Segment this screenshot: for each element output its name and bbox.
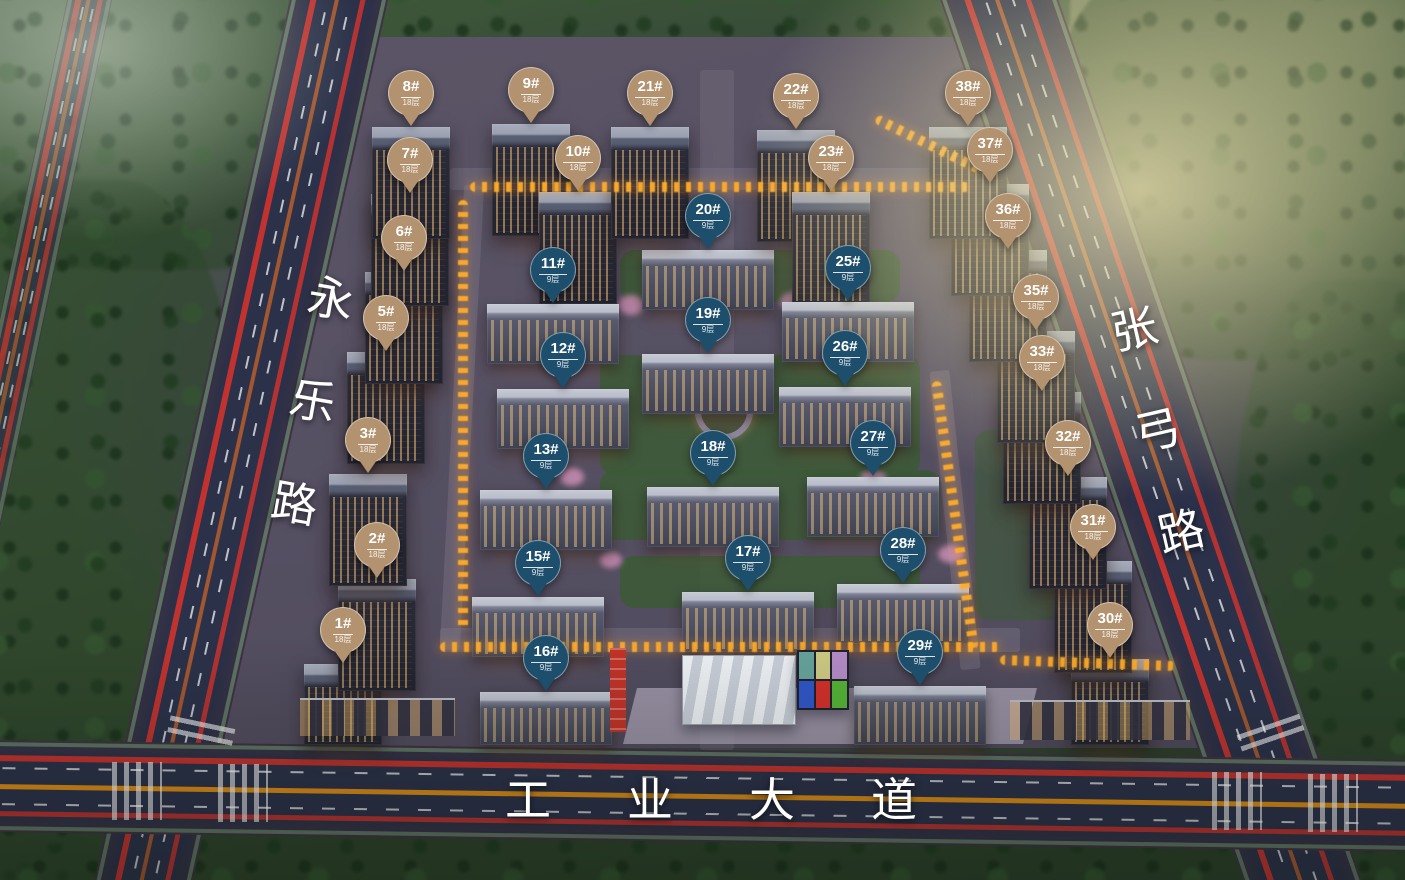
pin-head: 13# 9层: [523, 433, 569, 479]
pin-building-number: 19#: [693, 306, 722, 326]
pin-tail-icon: [864, 463, 882, 476]
pin-tail-icon: [522, 110, 540, 123]
pin-head: 18# 9层: [690, 430, 736, 476]
pin-floor-count: 18层: [1000, 222, 1017, 230]
pin-floor-count: 18层: [1060, 449, 1077, 457]
pin-tail-icon: [368, 565, 386, 578]
pin-tail-icon: [401, 180, 419, 193]
pin-tail-icon: [981, 170, 999, 183]
pin-head: 38# 18层: [945, 70, 991, 116]
building-pin[interactable]: 36# 18层: [985, 193, 1031, 249]
pin-building-number: 9#: [521, 76, 542, 96]
pin-tail-icon: [839, 288, 857, 301]
building-pin[interactable]: 26# 9层: [822, 330, 868, 386]
pin-tail-icon: [529, 583, 547, 596]
building-pin[interactable]: 18# 9层: [690, 430, 736, 486]
pin-head: 17# 9层: [725, 535, 771, 581]
pin-building-number: 23#: [816, 144, 845, 164]
pin-building-number: 20#: [693, 202, 722, 222]
building-pin[interactable]: 35# 18层: [1013, 274, 1059, 330]
building-pin[interactable]: 29# 9层: [897, 629, 943, 685]
pin-floor-count: 18层: [402, 166, 419, 174]
building-pin[interactable]: 11# 9层: [530, 247, 576, 303]
pin-tail-icon: [544, 290, 562, 303]
building-pin[interactable]: 25# 9层: [825, 245, 871, 301]
pin-building-number: 25#: [833, 254, 862, 274]
pin-building-number: 12#: [548, 341, 577, 361]
pin-building-number: 36#: [993, 202, 1022, 222]
pin-floor-count: 9层: [742, 564, 754, 572]
pin-tail-icon: [787, 116, 805, 129]
aerial-site-plan: 永乐路 张弓路 工业大道 1# 18层 2# 18层 3# 18层 5# 18层: [0, 0, 1405, 880]
building-pin[interactable]: 5# 18层: [363, 295, 409, 351]
building-pin[interactable]: 3# 18层: [345, 417, 391, 473]
pin-floor-count: 18层: [1028, 303, 1045, 311]
pin-floor-count: 18层: [1102, 631, 1119, 639]
pin-tail-icon: [1033, 378, 1051, 391]
pin-building-number: 30#: [1095, 611, 1124, 631]
building-pin[interactable]: 30# 18层: [1087, 602, 1133, 658]
pin-building-number: 11#: [539, 256, 567, 276]
pin-building-number: 35#: [1021, 283, 1050, 303]
pin-head: 1# 18层: [320, 607, 366, 653]
pin-tail-icon: [836, 373, 854, 386]
pin-floor-count: 18层: [823, 164, 840, 172]
building-pin[interactable]: 1# 18层: [320, 607, 366, 663]
pin-building-number: 26#: [830, 339, 859, 359]
pin-floor-count: 9层: [839, 359, 851, 367]
pin-head: 36# 18层: [985, 193, 1031, 239]
pin-building-number: 21#: [635, 79, 664, 99]
pin-head: 3# 18层: [345, 417, 391, 463]
pin-floor-count: 9层: [897, 556, 909, 564]
pin-floor-count: 9层: [532, 569, 544, 577]
pin-tail-icon: [911, 672, 929, 685]
building-pin[interactable]: 22# 18层: [773, 73, 819, 129]
building-pin[interactable]: 27# 9层: [850, 420, 896, 476]
building-pin[interactable]: 6# 18层: [381, 215, 427, 271]
building-pin[interactable]: 19# 9层: [685, 297, 731, 353]
pin-tail-icon: [395, 258, 413, 271]
pin-tail-icon: [334, 650, 352, 663]
pin-building-number: 29#: [905, 638, 934, 658]
pin-tail-icon: [959, 113, 977, 126]
pin-tail-icon: [554, 375, 572, 388]
pin-building-number: 15#: [523, 549, 552, 569]
pin-building-number: 2#: [367, 531, 388, 551]
pin-floor-count: 18层: [1034, 364, 1051, 372]
building-pin[interactable]: 28# 9层: [880, 527, 926, 583]
building-pin[interactable]: 37# 18层: [967, 127, 1013, 183]
pin-floor-count: 18层: [1085, 533, 1102, 541]
pin-head: 9# 18层: [508, 67, 554, 113]
pin-floor-count: 18层: [642, 99, 659, 107]
pin-building-number: 37#: [975, 136, 1004, 156]
building-pin[interactable]: 9# 18层: [508, 67, 554, 123]
pin-tail-icon: [699, 236, 717, 249]
building-pin[interactable]: 38# 18层: [945, 70, 991, 126]
pin-head: 19# 9层: [685, 297, 731, 343]
pin-building-number: 22#: [781, 82, 810, 102]
pin-tail-icon: [377, 338, 395, 351]
pin-head: 6# 18层: [381, 215, 427, 261]
pin-head: 20# 9层: [685, 193, 731, 239]
pin-building-number: 16#: [531, 644, 560, 664]
pin-floor-count: 18层: [396, 244, 413, 252]
building-pin[interactable]: 32# 18层: [1045, 420, 1091, 476]
pin-head: 33# 18层: [1019, 335, 1065, 381]
pin-building-number: 27#: [858, 429, 887, 449]
building-pin[interactable]: 13# 9层: [523, 433, 569, 489]
pin-head: 37# 18层: [967, 127, 1013, 173]
pin-head: 29# 9层: [897, 629, 943, 675]
pin-tail-icon: [641, 113, 659, 126]
pin-head: 23# 18层: [808, 135, 854, 181]
building-pin[interactable]: 15# 9层: [515, 540, 561, 596]
pin-tail-icon: [569, 178, 587, 191]
building-pin[interactable]: 7# 18层: [387, 137, 433, 193]
pin-floor-count: 9层: [914, 658, 926, 666]
pin-building-number: 31#: [1078, 513, 1107, 533]
pin-head: 12# 9层: [540, 332, 586, 378]
pin-tail-icon: [402, 113, 420, 126]
pin-head: 35# 18层: [1013, 274, 1059, 320]
pin-head: 21# 18层: [627, 70, 673, 116]
pin-floor-count: 9层: [702, 326, 714, 334]
pin-floor-count: 18层: [335, 636, 352, 644]
building-pin[interactable]: 20# 9层: [685, 193, 731, 249]
pin-building-number: 3#: [358, 426, 379, 446]
pin-floor-count: 9层: [702, 222, 714, 230]
pin-head: 31# 18层: [1070, 504, 1116, 550]
pin-floor-count: 9层: [540, 664, 552, 672]
pin-building-number: 1#: [333, 616, 354, 636]
building-pin[interactable]: 21# 18层: [627, 70, 673, 126]
building-pin[interactable]: 8# 18层: [388, 70, 434, 126]
pin-tail-icon: [1101, 645, 1119, 658]
pin-head: 28# 9层: [880, 527, 926, 573]
pin-floor-count: 18层: [523, 96, 540, 104]
pin-floor-count: 9层: [867, 449, 879, 457]
pin-building-number: 33#: [1027, 344, 1056, 364]
pin-head: 5# 18层: [363, 295, 409, 341]
pin-building-number: 38#: [953, 79, 982, 99]
pin-tail-icon: [999, 236, 1017, 249]
pin-tail-icon: [894, 570, 912, 583]
pins-layer: 1# 18层 2# 18层 3# 18层 5# 18层 6#: [0, 0, 1405, 880]
pin-floor-count: 18层: [982, 156, 999, 164]
pin-tail-icon: [1059, 463, 1077, 476]
pin-head: 16# 9层: [523, 635, 569, 681]
pin-tail-icon: [1027, 317, 1045, 330]
pin-tail-icon: [1084, 547, 1102, 560]
pin-floor-count: 9层: [540, 462, 552, 470]
building-pin[interactable]: 16# 9层: [523, 635, 569, 691]
building-pin[interactable]: 12# 9层: [540, 332, 586, 388]
pin-building-number: 18#: [698, 439, 727, 459]
pin-building-number: 6#: [394, 224, 415, 244]
pin-tail-icon: [699, 340, 717, 353]
pin-head: 25# 9层: [825, 245, 871, 291]
pin-floor-count: 9层: [557, 361, 569, 369]
pin-building-number: 5#: [376, 304, 397, 324]
pin-floor-count: 18层: [403, 99, 420, 107]
pin-building-number: 13#: [531, 442, 560, 462]
building-pin[interactable]: 10# 18层: [555, 135, 601, 191]
pin-head: 32# 18层: [1045, 420, 1091, 466]
pin-head: 26# 9层: [822, 330, 868, 376]
pin-floor-count: 18层: [960, 99, 977, 107]
building-pin[interactable]: 31# 18层: [1070, 504, 1116, 560]
building-pin[interactable]: 2# 18层: [354, 522, 400, 578]
pin-floor-count: 18层: [378, 324, 395, 332]
pin-building-number: 7#: [400, 146, 421, 166]
pin-floor-count: 18层: [570, 164, 587, 172]
pin-tail-icon: [537, 476, 555, 489]
pin-building-number: 17#: [733, 544, 762, 564]
pin-head: 27# 9层: [850, 420, 896, 466]
pin-tail-icon: [822, 178, 840, 191]
pin-head: 10# 18层: [555, 135, 601, 181]
pin-head: 30# 18层: [1087, 602, 1133, 648]
pin-head: 15# 9层: [515, 540, 561, 586]
pin-floor-count: 18层: [360, 446, 377, 454]
pin-tail-icon: [739, 578, 757, 591]
pin-head: 11# 9层: [530, 247, 576, 293]
pin-building-number: 32#: [1053, 429, 1082, 449]
pin-floor-count: 18层: [788, 102, 805, 110]
pin-floor-count: 9层: [842, 274, 854, 282]
pin-building-number: 10#: [563, 144, 592, 164]
pin-floor-count: 18层: [369, 551, 386, 559]
pin-tail-icon: [704, 473, 722, 486]
pin-floor-count: 9层: [547, 276, 559, 284]
pin-floor-count: 9层: [707, 459, 719, 467]
pin-tail-icon: [537, 678, 555, 691]
pin-tail-icon: [359, 460, 377, 473]
pin-head: 22# 18层: [773, 73, 819, 119]
pin-building-number: 28#: [888, 536, 917, 556]
pin-head: 8# 18层: [388, 70, 434, 116]
building-pin[interactable]: 23# 18层: [808, 135, 854, 191]
building-pin[interactable]: 17# 9层: [725, 535, 771, 591]
pin-head: 2# 18层: [354, 522, 400, 568]
building-pin[interactable]: 33# 18层: [1019, 335, 1065, 391]
pin-building-number: 8#: [401, 79, 422, 99]
pin-head: 7# 18层: [387, 137, 433, 183]
